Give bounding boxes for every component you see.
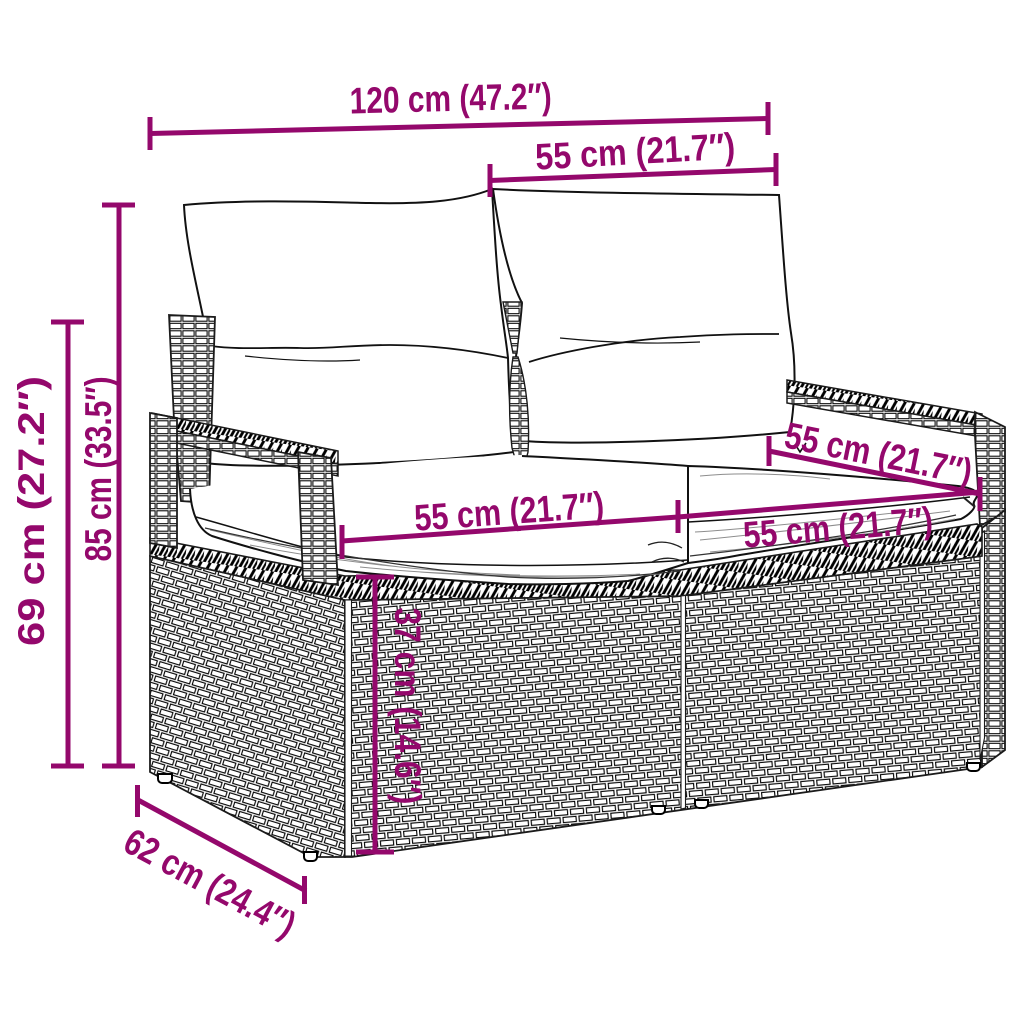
svg-text:37 cm (14.6″): 37 cm (14.6″) bbox=[387, 608, 428, 805]
svg-text:69 cm (27.2″): 69 cm (27.2″) bbox=[11, 376, 52, 646]
svg-text:120 cm (47.2″): 120 cm (47.2″) bbox=[349, 76, 552, 122]
svg-text:85 cm (33.5″): 85 cm (33.5″) bbox=[78, 377, 119, 562]
